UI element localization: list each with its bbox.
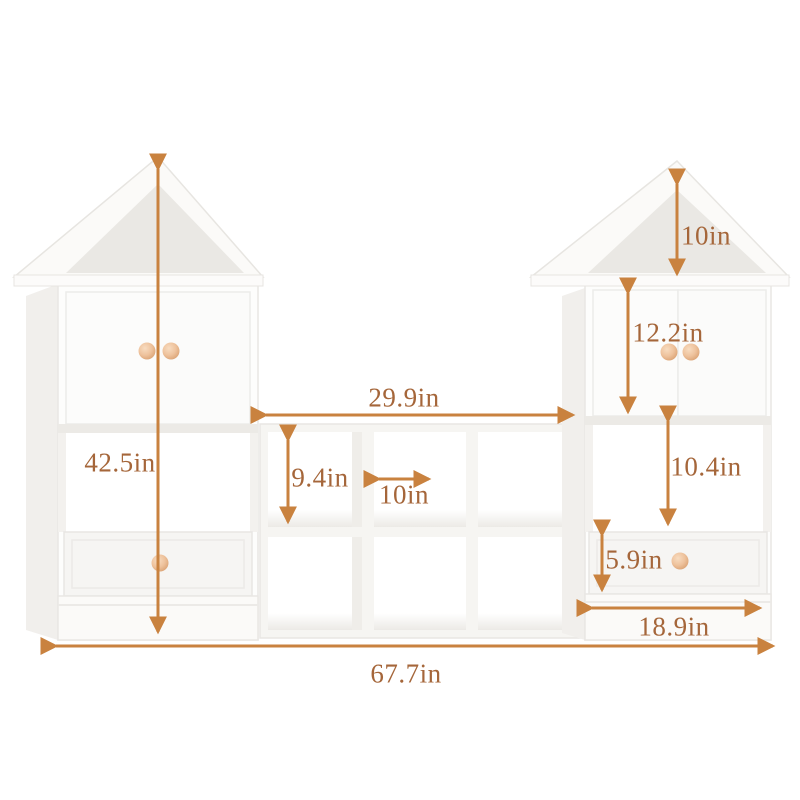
dim-label-cube-width: 10in: [379, 482, 429, 509]
left-open-shelf-wall-left: [58, 433, 66, 532]
product-dimension-diagram: 42.5in 29.9in 9.4in 10in 10in 12.2in 10.…: [0, 0, 800, 800]
cube-r2c3: [478, 537, 572, 630]
cube-r1c3: [478, 432, 572, 527]
cube-r2c1: [268, 537, 362, 630]
right-shelf-board: [585, 416, 771, 425]
dim-label-right-tower-width: 18.9in: [638, 614, 709, 641]
right-open-shelf-wall-right: [763, 425, 771, 532]
left-drawer-knob: [152, 555, 169, 572]
left-roof-eave: [14, 275, 263, 286]
left-cabinet-knob-right: [163, 343, 180, 360]
cube-r2c2: [374, 537, 466, 630]
dim-label-right-shelf-height: 10.4in: [670, 454, 741, 481]
right-roof-eave: [531, 275, 789, 286]
right-drawer-knob: [672, 553, 689, 570]
dim-label-right-door-height: 12.2in: [632, 320, 703, 347]
dim-label-total-width: 67.7in: [370, 661, 441, 688]
left-cabinet-knob-left: [139, 343, 156, 360]
middle-cube-shelf: [260, 424, 580, 638]
right-tower-side-panel: [562, 288, 585, 640]
dim-label-cube-height: 9.4in: [291, 465, 348, 492]
left-tower: [14, 157, 263, 640]
dim-label-left-tower-height: 42.5in: [84, 450, 155, 477]
left-open-shelf-wall-right: [250, 433, 258, 532]
cube-divider-shadow-3: [352, 537, 362, 630]
dim-label-roof-height: 10in: [681, 223, 731, 250]
right-open-shelf-wall-left: [585, 425, 593, 532]
dim-label-drawer-height: 5.9in: [605, 547, 662, 574]
left-tower-side-panel: [26, 284, 58, 640]
dim-label-middle-shelf-width: 29.9in: [368, 385, 439, 412]
cube-divider-shadow-1: [352, 432, 362, 527]
